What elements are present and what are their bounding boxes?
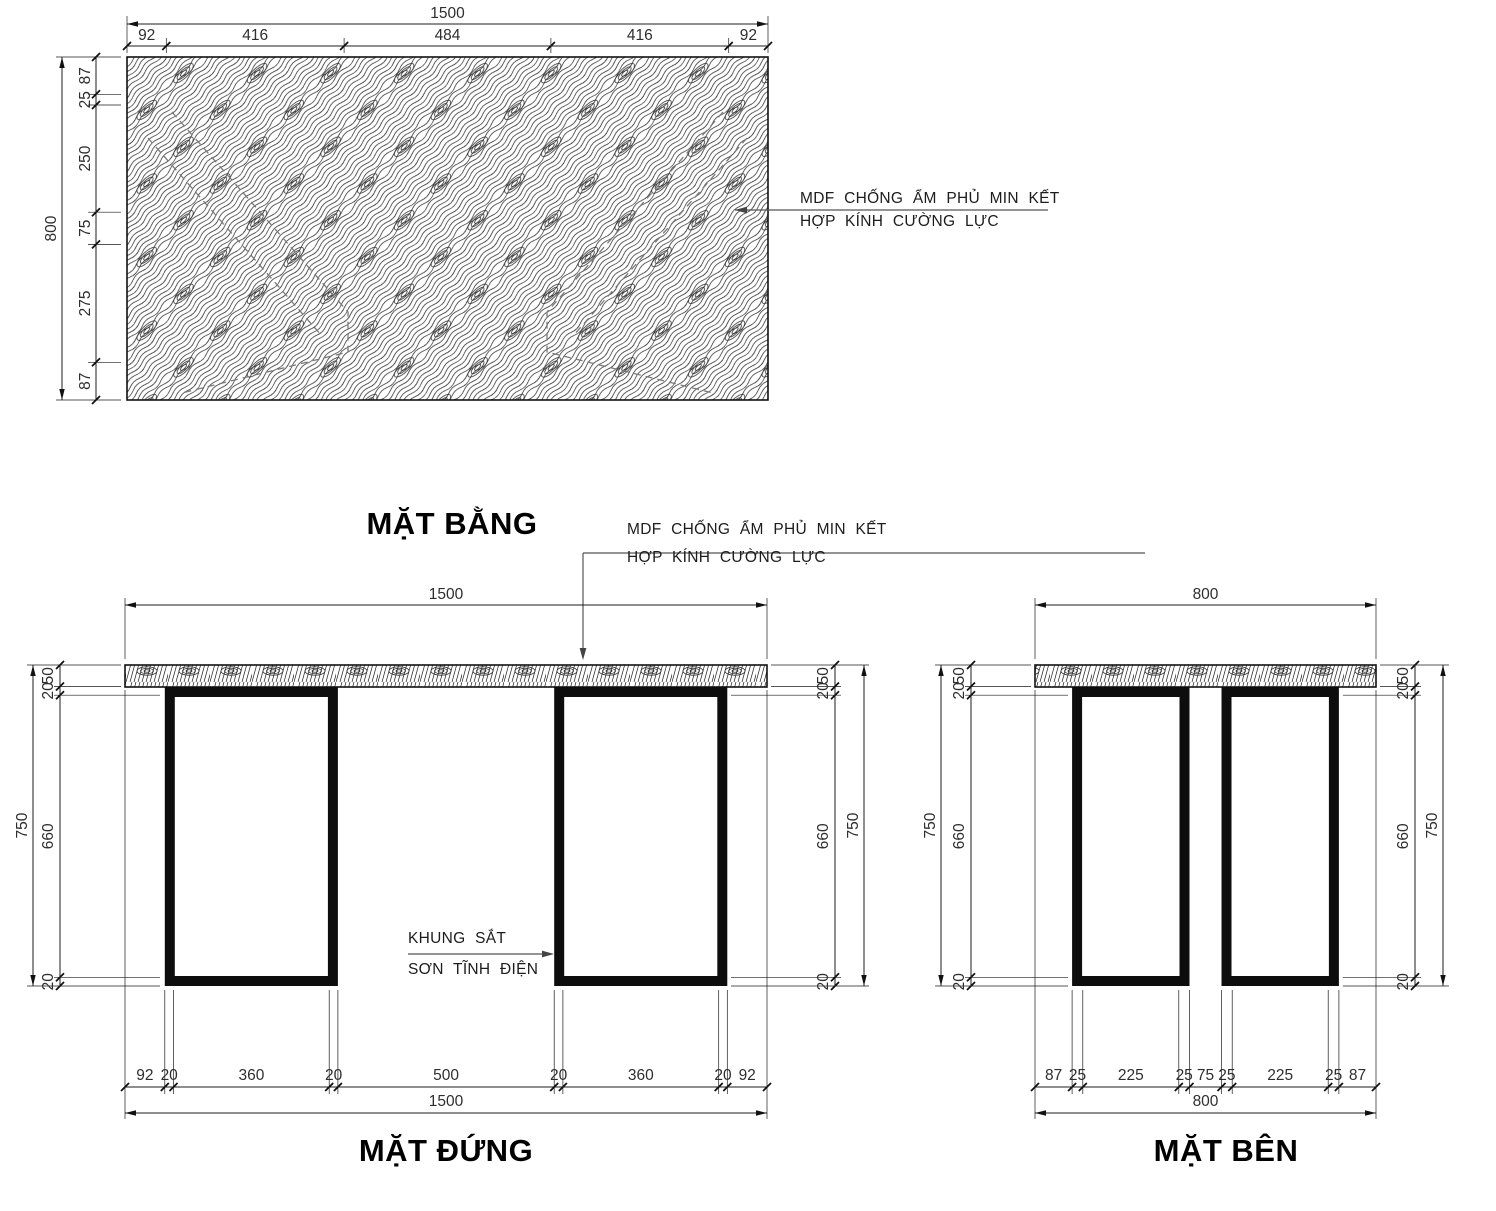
side-tabletop (1035, 665, 1376, 687)
dim-label: 25 (1176, 1067, 1193, 1084)
side-left-leg (1072, 687, 1189, 986)
side-right-leg (1222, 687, 1339, 986)
view-title-front: MẶT ĐỨNG (359, 1132, 533, 1168)
front-right-height-dim: 50 20 660 20 750 (731, 665, 869, 990)
dim-label: 660 (40, 823, 57, 849)
dim-label: 87 (77, 373, 94, 390)
side-top-dim: 800 (1035, 586, 1376, 659)
dim-label: 750 (845, 812, 862, 838)
dim-label: 92 (136, 1067, 153, 1084)
dim-label: 800 (1193, 586, 1219, 603)
dim-label: 750 (1424, 812, 1441, 838)
note-text: HỢP KÍNH CƯỜNG LỰC (800, 213, 999, 230)
dim-label: 800 (1193, 1093, 1219, 1110)
plan-tabletop-panel (127, 57, 768, 400)
dim-label: 87 (1045, 1067, 1062, 1084)
dim-label: 250 (77, 145, 94, 171)
dim-label: 25 (1218, 1067, 1235, 1084)
view-title-plan: MẶT BẰNG (366, 506, 537, 541)
dim-label: 87 (1349, 1067, 1366, 1084)
dim-label: 360 (238, 1067, 264, 1084)
front-tabletop (125, 665, 767, 687)
front-left-leg (165, 687, 338, 986)
dim-label: 87 (77, 67, 94, 84)
plan-view: 1500 92 416 484 416 92 800 87 25 250 75 (43, 5, 1060, 541)
side-right-height-dim: 50 20 660 20 750 (1343, 665, 1449, 990)
plan-material-note: MDF CHỐNG ẨM PHỦ MIN KẾT HỢP KÍNH CƯỜNG … (735, 189, 1060, 230)
front-material-note: MDF CHỐNG ẨM PHỦ MIN KẾT HỢP KÍNH CƯỜNG … (580, 520, 1145, 660)
dim-label: 20 (951, 973, 968, 991)
front-frame-note: KHUNG SẮT SƠN TĨNH ĐIỆN (408, 929, 554, 978)
dim-label: 1500 (429, 1093, 464, 1110)
dim-label: 1500 (430, 5, 465, 22)
note-text: KHUNG SẮT (408, 929, 506, 947)
dim-label: 20 (1395, 973, 1412, 991)
side-view: 800 750 50 20 660 20 (922, 586, 1449, 1168)
dim-label: 20 (815, 973, 832, 991)
dim-label: 20 (161, 1067, 179, 1084)
note-text: MDF CHỐNG ẨM PHỦ MIN KẾT (627, 520, 887, 538)
note-text: SƠN TĨNH ĐIỆN (408, 961, 538, 978)
dim-label: 20 (325, 1067, 343, 1084)
side-left-height-dim: 750 50 20 660 20 (922, 665, 1068, 990)
leader-arrow-icon (542, 951, 554, 958)
note-text: HỢP KÍNH CƯỜNG LỰC (627, 549, 826, 566)
dim-label: 750 (14, 812, 31, 838)
plan-left-dim: 800 87 25 250 75 275 87 (43, 57, 121, 400)
note-text: MDF CHỐNG ẨM PHỦ MIN KẾT (800, 189, 1060, 207)
leader-arrow-icon (580, 648, 587, 660)
front-top-dim: 1500 (125, 586, 767, 659)
dim-label: 75 (77, 220, 94, 237)
dim-label: 20 (550, 1067, 568, 1084)
dim-label: 416 (627, 27, 653, 44)
front-left-height-dim: 750 50 20 660 20 (14, 665, 160, 990)
cad-sheet: 1500 92 416 484 416 92 800 87 25 250 75 (0, 0, 1496, 1211)
dim-label: 484 (435, 27, 461, 44)
dim-label: 500 (433, 1067, 459, 1084)
dim-label: 25 (1325, 1067, 1342, 1084)
dim-label: 416 (242, 27, 268, 44)
dim-label: 660 (1395, 823, 1412, 849)
dim-label: 660 (815, 823, 832, 849)
dim-label: 20 (1395, 682, 1412, 700)
plan-top-dim: 1500 92 416 484 416 92 (127, 5, 768, 53)
dim-label: 92 (138, 27, 155, 44)
front-view: MDF CHỐNG ẨM PHỦ MIN KẾT HỢP KÍNH CƯỜNG … (14, 520, 1145, 1168)
dim-label: 50 (1395, 667, 1412, 685)
view-title-side: MẶT BÊN (1154, 1132, 1299, 1168)
dim-label: 92 (739, 1067, 756, 1084)
dim-label: 20 (951, 682, 968, 700)
dim-label: 75 (1197, 1067, 1214, 1084)
dim-label: 25 (1069, 1067, 1086, 1084)
dim-label: 750 (922, 812, 939, 838)
dim-label: 92 (740, 27, 757, 44)
dim-label: 275 (77, 290, 94, 316)
dim-label: 660 (951, 823, 968, 849)
dim-label: 360 (628, 1067, 654, 1084)
dim-label: 800 (43, 215, 60, 241)
dim-label: 20 (714, 1067, 732, 1084)
dim-label: 20 (815, 682, 832, 700)
cad-drawing: 1500 92 416 484 416 92 800 87 25 250 75 (0, 0, 1496, 1211)
dim-label: 25 (77, 91, 94, 108)
dim-label: 1500 (429, 586, 464, 603)
dim-label: 20 (40, 682, 57, 700)
dim-label: 50 (40, 667, 57, 685)
dim-label: 20 (40, 973, 57, 991)
dim-label: 50 (951, 667, 968, 685)
dim-label: 225 (1267, 1067, 1293, 1084)
dim-label: 50 (815, 667, 832, 685)
front-right-leg (554, 687, 727, 986)
dim-label: 225 (1118, 1067, 1144, 1084)
